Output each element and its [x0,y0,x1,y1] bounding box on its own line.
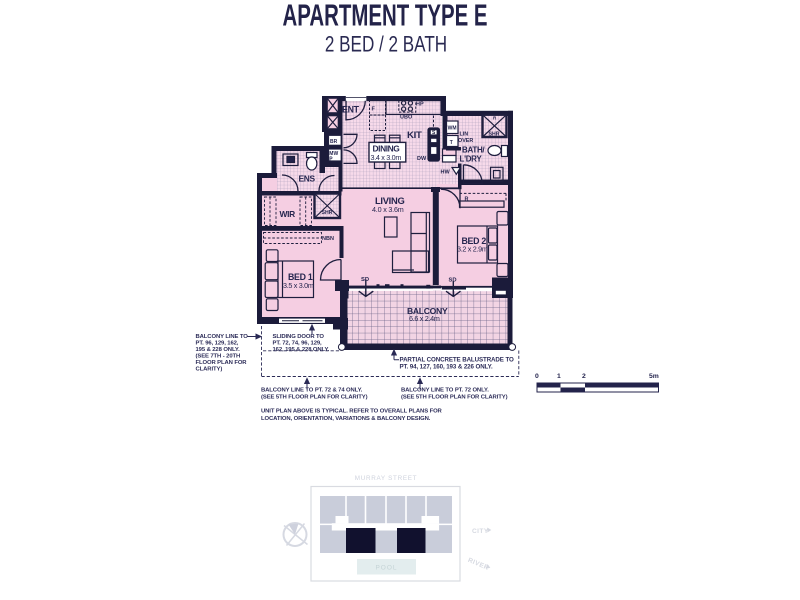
svg-text:2 BED / 2 BATH: 2 BED / 2 BATH [325,32,447,57]
svg-text:SLIDING DOOR TO: SLIDING DOOR TO [273,334,325,340]
svg-text:SHR: SHR [489,132,500,138]
svg-text:5m: 5m [649,373,659,380]
svg-text:4.0 x 3.6m: 4.0 x 3.6m [372,205,404,214]
svg-text:PARTIAL CONCRETE BALUSTRADE TO: PARTIAL CONCRETE BALUSTRADE TO [400,357,515,364]
svg-text:PT. 72, 74, 96, 129,: PT. 72, 74, 96, 129, [273,341,323,347]
svg-text:BALCONY LINE TO PT. 72 & 74 ON: BALCONY LINE TO PT. 72 & 74 ONLY. [261,388,363,394]
svg-text:PT. 94, 127, 160, 193 & 226 ON: PT. 94, 127, 160, 193 & 226 ONLY. [400,364,494,371]
svg-text:HP: HP [416,102,424,108]
svg-text:LIN: LIN [460,132,469,138]
svg-text:WIR: WIR [280,209,296,219]
svg-text:LOCATION, ORIENTATION, VARIATI: LOCATION, ORIENTATION, VARIATIONS & BALC… [261,416,431,422]
svg-text:APARTMENT TYPE E: APARTMENT TYPE E [283,0,488,33]
svg-text:(SEE 5TH FLOOR PLAN FOR CLARIT: (SEE 5TH FLOOR PLAN FOR CLARITY) [401,395,508,401]
svg-text:PT. 96, 129, 162,: PT. 96, 129, 162, [196,341,239,347]
svg-text:ENT: ENT [342,105,360,115]
svg-text:SD: SD [449,278,457,284]
svg-text:CLARITY): CLARITY) [196,367,223,373]
svg-text:3.4 x 3.0m: 3.4 x 3.0m [371,153,402,162]
svg-text:BALCONY LINE TO: BALCONY LINE TO [196,334,249,340]
svg-text:(SEE 5TH FLOOR PLAN FOR CLARIT: (SEE 5TH FLOOR PLAN FOR CLARITY) [261,395,368,401]
svg-text:POOL: POOL [375,565,397,572]
svg-text:0: 0 [535,373,539,380]
svg-text:R: R [465,197,469,203]
svg-text:2: 2 [582,373,586,380]
svg-text:UNIT PLAN ABOVE IS TYPICAL. RE: UNIT PLAN ABOVE IS TYPICAL. REFER TO OVE… [261,409,443,415]
svg-text:1: 1 [557,373,561,380]
svg-text:195 & 228 ONLY.: 195 & 228 ONLY. [196,347,241,353]
svg-text:3.2 x 2.9m: 3.2 x 2.9m [457,245,488,254]
svg-text:SHR: SHR [322,210,333,216]
svg-text:6.6 x 2.4m: 6.6 x 2.4m [409,314,440,323]
svg-text:SD: SD [361,277,369,283]
svg-text:CITY: CITY [472,528,489,535]
svg-text:BALCONY LINE TO PT. 72 ONLY.: BALCONY LINE TO PT. 72 ONLY. [401,388,489,394]
svg-text:NBN: NBN [322,236,334,242]
svg-text:162, 195 & 228 ONLY.: 162, 195 & 228 ONLY. [273,347,330,353]
svg-text:KIT: KIT [407,130,422,141]
svg-text:WM: WM [448,126,457,132]
svg-text:ENS: ENS [299,174,316,184]
svg-text:FLOOR PLAN FOR: FLOOR PLAN FOR [196,360,248,366]
svg-text:BATH/: BATH/ [462,146,485,155]
svg-text:T: T [450,140,453,146]
svg-text:L'DRY: L'DRY [460,155,483,164]
svg-text:DW: DW [417,156,427,162]
svg-text:3.5 x 3.0m: 3.5 x 3.0m [283,281,314,290]
svg-text:OVER: OVER [458,138,473,144]
svg-text:(SEE 7TH - 20TH: (SEE 7TH - 20TH [196,354,241,360]
svg-text:MURRAY STREET: MURRAY STREET [355,475,417,482]
svg-text:UBO: UBO [400,115,413,121]
svg-text:BR: BR [330,139,338,145]
svg-text:HW: HW [441,170,451,176]
